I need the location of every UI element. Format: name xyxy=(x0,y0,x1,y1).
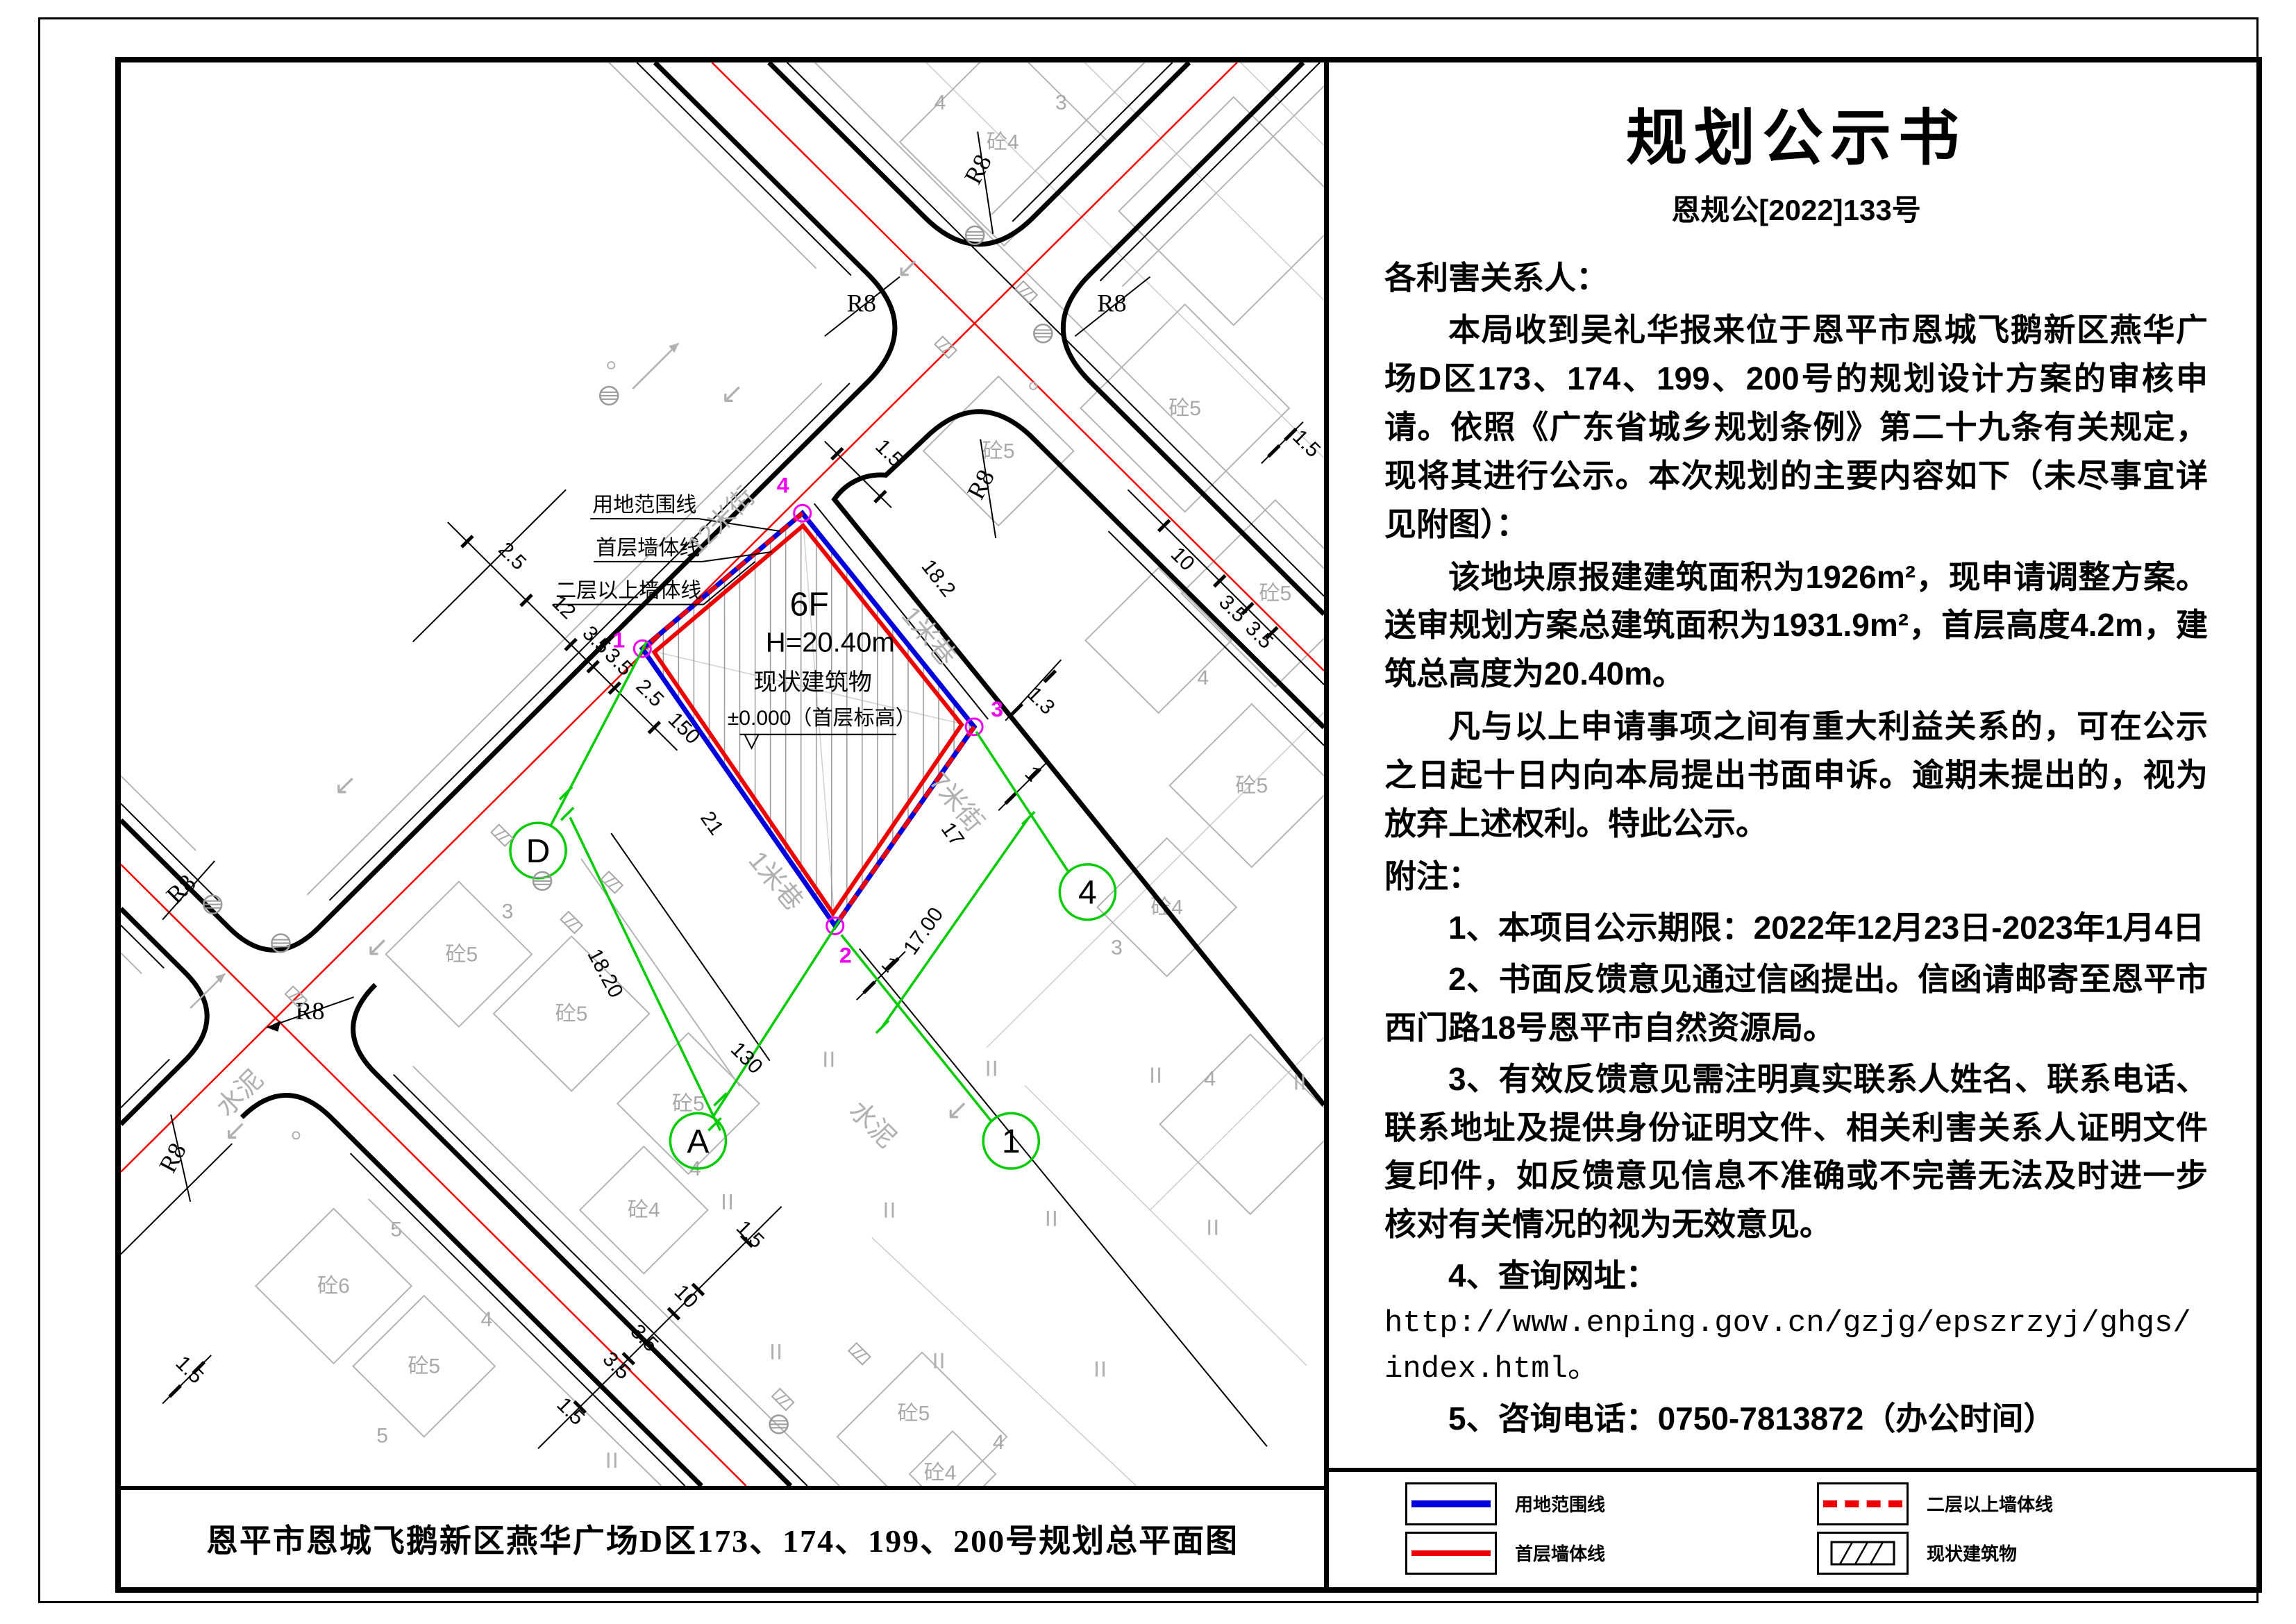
legend-swatch-red-dashed xyxy=(1817,1482,1909,1525)
dim-1: 1 xyxy=(1020,762,1044,786)
content-frame: 砼4 3 4 砼5 砼5 砼5 4 砼5 砼4 3 砼5 砼5 砼5 砼4 4 … xyxy=(115,57,2262,1593)
street-1m-lane: 1米巷 xyxy=(742,846,808,916)
parcels xyxy=(255,62,1324,1486)
street-cement: 水泥 xyxy=(844,1096,902,1153)
grading-arrow-icon: ↙ xyxy=(366,931,389,962)
dim-10: 10 xyxy=(1166,543,1199,576)
parcel-label: 砼4 xyxy=(987,131,1019,154)
parcel-label: 3 xyxy=(1055,92,1067,115)
level-symbol xyxy=(740,735,896,748)
dim-1_5: 1.5 xyxy=(171,1352,208,1389)
notice-salutation: 各利害关系人： xyxy=(1384,254,2208,302)
road-inner-lines xyxy=(121,62,1324,1486)
plan-caption: 恩平市恩城飞鹅新区燕华广场D区173、174、199、200号规划总平面图 xyxy=(121,1486,1324,1587)
notice-paragraph-2: 该地块原报建建筑面积为1926m²，现申请调整方案。送审规划方案总建筑面积为19… xyxy=(1384,553,2208,699)
parcel-label: 砼5 xyxy=(408,1355,440,1378)
legend-swatch-hatch xyxy=(1817,1532,1909,1575)
leader-label-boundary: 用地范围线 xyxy=(592,494,696,517)
legend-label: 现状建筑物 xyxy=(1927,1540,2017,1566)
parcel-label: 砼6 xyxy=(317,1275,350,1298)
site-plan-panel: 砼4 3 4 砼5 砼5 砼5 4 砼5 砼4 3 砼5 砼5 砼5 砼4 4 … xyxy=(121,62,1329,1587)
dim-17_00: 17.00 xyxy=(899,903,948,959)
site-level: ±0.000（首层标高） xyxy=(728,707,916,730)
parcel-label: 砼5 xyxy=(555,1003,588,1026)
dim-10: 10 xyxy=(670,1280,703,1313)
grading-arrow-icon: ↙ xyxy=(896,253,920,283)
road-edges xyxy=(121,62,1324,1486)
notice-paragraph-3: 凡与以上申请事项之间有重大利益关系的，可在公示之日起十日内向本局提出书面申诉。逾… xyxy=(1384,703,2208,848)
legend-label: 用地范围线 xyxy=(1515,1491,1605,1516)
dim-1: 1 xyxy=(877,953,901,977)
corner-marker-label: 4 xyxy=(777,472,789,497)
parcel-label: 砼4 xyxy=(924,1462,957,1484)
legend-label: 首层墙体线 xyxy=(1515,1540,1605,1566)
legend-item-boundary: 用地范围线 xyxy=(1405,1482,1817,1525)
legend: 用地范围线 二层以上墙体线 首层墙体线 现状建筑 xyxy=(1329,1468,2256,1587)
grading-arrow-icon: ↙ xyxy=(224,1115,247,1146)
parcel-label: 4 xyxy=(935,92,946,115)
notice-note-3: 3、有效反馈意见需注明真实联系人姓名、联系电话、联系地址及提供身份证明文件、相关… xyxy=(1384,1055,2208,1250)
parcel-labels: 砼4 3 4 砼5 砼5 砼5 4 砼5 砼4 3 砼5 砼5 砼5 砼4 4 … xyxy=(317,92,1291,1484)
grading-arrow-icon: ↙ xyxy=(334,769,358,800)
hatch-swatch-icon xyxy=(1819,1534,1907,1573)
radius-r8: R8 xyxy=(153,1139,192,1178)
parcel-label: 砼5 xyxy=(1235,774,1268,797)
dim-2_5: 2.5 xyxy=(494,538,530,575)
leader-label-upper-floor: 二层以上墙体线 xyxy=(555,580,701,603)
dim-1_3: 1.3 xyxy=(1023,683,1059,719)
radius-r8: R8 xyxy=(959,150,997,189)
legend-swatch-blue-solid xyxy=(1405,1482,1497,1525)
road-outer-lines xyxy=(121,62,1324,1486)
dim-21: 21 xyxy=(696,807,728,839)
notice-body: 规划公示书 恩规公[2022]133号 各利害关系人： 本局收到吴礼华报来位于恩… xyxy=(1329,62,2256,1468)
notice-url-line-2: index.html。 xyxy=(1384,1348,2208,1392)
notice-paragraph-1: 本局收到吴礼华报来位于恩平市恩城飞鹅新区燕华广场D区173、174、199、20… xyxy=(1384,306,2208,549)
parcel-label: 砼4 xyxy=(628,1199,660,1222)
radius-r8: R8 xyxy=(1097,290,1126,317)
site-floors: 6F xyxy=(790,587,829,623)
legend-item-existing-building: 现状建筑物 xyxy=(1817,1532,2229,1575)
parcel-label: 砼5 xyxy=(898,1402,930,1425)
notice-title: 规划公示书 xyxy=(1384,89,2208,177)
dim-3_5: 3.5 xyxy=(598,1348,635,1384)
parcel-label: 砼5 xyxy=(672,1092,705,1115)
parcel-label: 4 xyxy=(1204,1068,1216,1091)
grading-arrow-icon: ↙ xyxy=(720,378,744,409)
radius-r8: R8 xyxy=(847,290,876,317)
map-symbols: ↙ ↙ ↙ ↙ ↙ ↙ xyxy=(190,226,1303,1468)
dim-1_5: 1.5 xyxy=(732,1216,769,1253)
notice-note-4: 4、查询网址： xyxy=(1384,1252,2208,1300)
site-height: H=20.40m xyxy=(766,627,895,658)
legend-swatch-red-solid xyxy=(1405,1532,1497,1575)
radius-r8: R8 xyxy=(161,869,201,909)
dim-18_2: 18.2 xyxy=(916,555,960,601)
axis-label-d: D xyxy=(526,833,551,870)
legend-item-upper-wall: 二层以上墙体线 xyxy=(1817,1482,2229,1525)
axis-label-1: 1 xyxy=(1002,1123,1021,1160)
parcel-label: 砼5 xyxy=(982,440,1015,463)
axis-label-4: 4 xyxy=(1078,875,1097,912)
road-centerlines xyxy=(121,62,1324,1486)
radius-labels: R8 R8 R8 R8 R8 R8 R8 xyxy=(153,132,1150,1202)
notice-note-1: 1、本项目公示期限：2022年12月23日-2023年1月4日 xyxy=(1384,904,2208,953)
notice-note-5: 5、咨询电话：0750-7813872（办公时间） xyxy=(1384,1395,2208,1443)
legend-item-first-wall: 首层墙体线 xyxy=(1405,1532,1817,1575)
axis-label-a: A xyxy=(687,1123,709,1160)
dim-1_5: 1.5 xyxy=(871,435,907,471)
notice-url-line-1: http://www.enping.gov.cn/gzjg/epszrzyj/g… xyxy=(1384,1302,2208,1346)
parcel-label: 4 xyxy=(993,1431,1005,1454)
site-plan-drawing: 砼4 3 4 砼5 砼5 砼5 4 砼5 砼4 3 砼5 砼5 砼5 砼4 4 … xyxy=(121,62,1324,1486)
parcel-label: 砼5 xyxy=(445,943,478,966)
parcel-label: 砼5 xyxy=(1168,397,1201,420)
parcel-label: 4 xyxy=(1197,667,1209,689)
radius-r8: R8 xyxy=(295,997,324,1025)
dim-18_20: 18.20 xyxy=(583,945,628,1001)
dim-1_5: 1.5 xyxy=(552,1393,589,1430)
legend-label: 二层以上墙体线 xyxy=(1927,1491,2053,1516)
notice-note-2: 2、书面反馈意见通过信函提出。信函请邮寄至恩平市西门路18号恩平市自然资源局。 xyxy=(1384,955,2208,1053)
parcel-label: 5 xyxy=(376,1424,388,1447)
notice-panel: 规划公示书 恩规公[2022]133号 各利害关系人： 本局收到吴礼华报来位于恩… xyxy=(1329,62,2256,1587)
notice-notes-label: 附注： xyxy=(1384,853,2208,901)
corner-marker-label: 3 xyxy=(991,696,1003,721)
parcel-label: 砼5 xyxy=(1259,583,1291,605)
parcel-label: 3 xyxy=(502,901,514,923)
parcel-label: 3 xyxy=(1111,936,1123,959)
notice-doc-number: 恩规公[2022]133号 xyxy=(1384,187,2208,229)
grading-arrow-icon: ↙ xyxy=(946,1094,969,1125)
radius-r8: R8 xyxy=(962,465,1000,504)
site-status: 现状建筑物 xyxy=(754,669,872,696)
